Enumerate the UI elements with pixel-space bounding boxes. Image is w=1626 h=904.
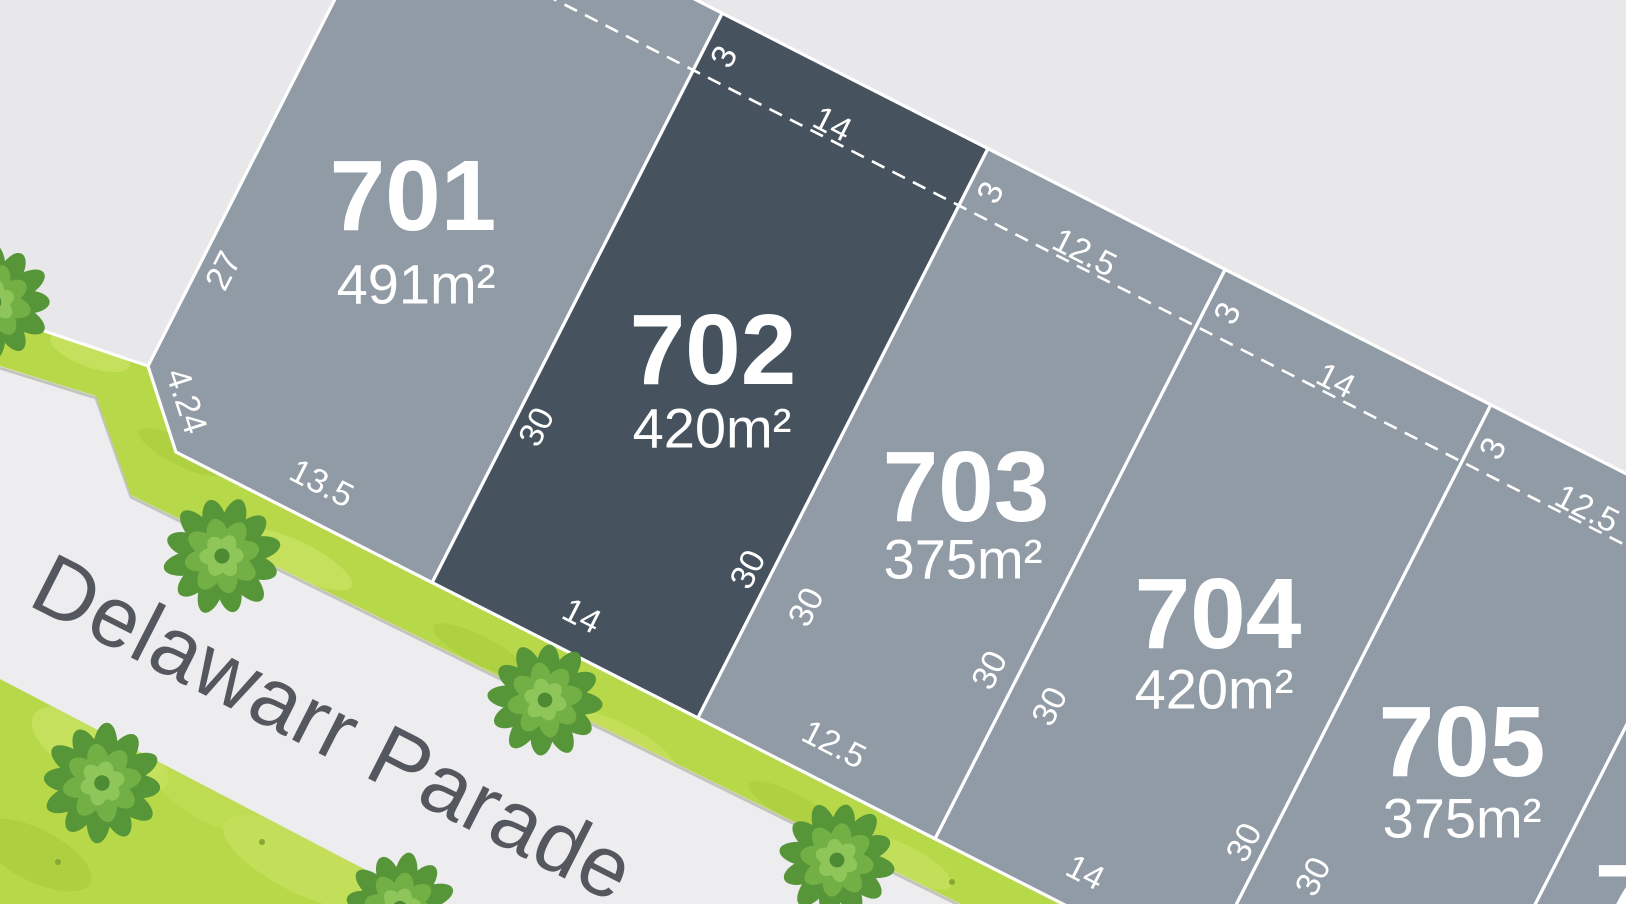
lot-703-area: 375m² [884, 528, 1043, 591]
estate-plan-canvas: 27 4.24 13.5 30 14 3 14 30 30 12.5 3 12.… [0, 0, 1626, 904]
lot-705-number: 705 [1379, 686, 1546, 798]
lot-704-number: 704 [1135, 558, 1302, 670]
lot-705-area: 375m² [1383, 787, 1542, 850]
lot-702-number: 702 [630, 294, 797, 406]
lot-703-number: 703 [883, 431, 1050, 543]
masterplan-svg: 27 4.24 13.5 30 14 3 14 30 30 12.5 3 12.… [0, 0, 1626, 904]
lot-701-area: 491m² [337, 253, 496, 316]
lot-701-number: 701 [330, 140, 497, 252]
lot-704-area: 420m² [1135, 658, 1294, 721]
lot-702-area: 420m² [633, 397, 792, 460]
lot-706-number: 706 [1595, 844, 1626, 904]
